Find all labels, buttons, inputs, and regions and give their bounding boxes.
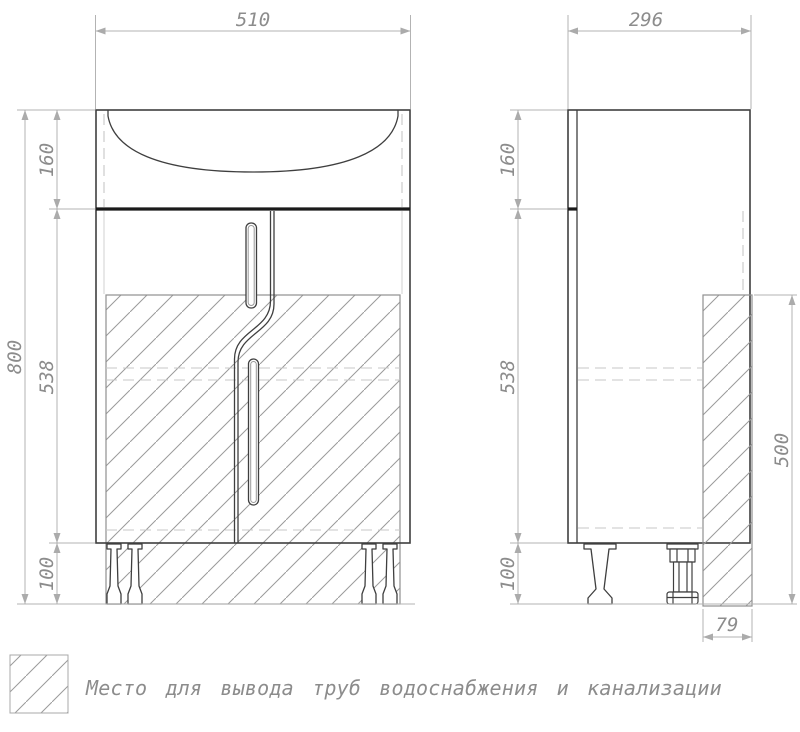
side-leg-section-label: 100: [497, 557, 519, 591]
front-width-label: 510: [236, 9, 270, 31]
sink-apron-curve: [108, 110, 398, 172]
side-top-section-label: 160: [497, 143, 519, 177]
legend: Место для вывода труб водоснабжения и ка…: [10, 655, 722, 713]
side-body-section-label: 538: [497, 360, 519, 394]
front-top-section-label: 160: [36, 143, 58, 177]
pipe-zone-height-label: 500: [771, 433, 793, 467]
pipe-zone-width-label: 79: [716, 614, 739, 636]
side-pipe-zone-hatch: [703, 295, 752, 606]
side-view: [568, 110, 752, 606]
side-shelf-hidden-lines: [578, 368, 702, 380]
legend-hatch-swatch: [10, 655, 68, 713]
front-leg-section-label: 100: [36, 557, 58, 591]
side-depth-label: 296: [629, 9, 663, 31]
front-view: [96, 110, 410, 604]
legend-text: Место для вывода труб водоснабжения и ка…: [85, 676, 722, 700]
vanity-cabinet-technical-drawing: 510 296 800 160 538 100 160 538 100 500 …: [0, 0, 800, 732]
side-adjustable-foot: [667, 544, 698, 604]
side-front-leg: [584, 544, 616, 604]
front-body-section-label: 538: [36, 360, 58, 394]
door-handle-lower: [249, 359, 259, 505]
front-total-height-label: 800: [4, 340, 26, 374]
drawing-canvas: 510 296 800 160 538 100 160 538 100 500 …: [0, 0, 800, 732]
door-handle-upper: [246, 223, 257, 308]
